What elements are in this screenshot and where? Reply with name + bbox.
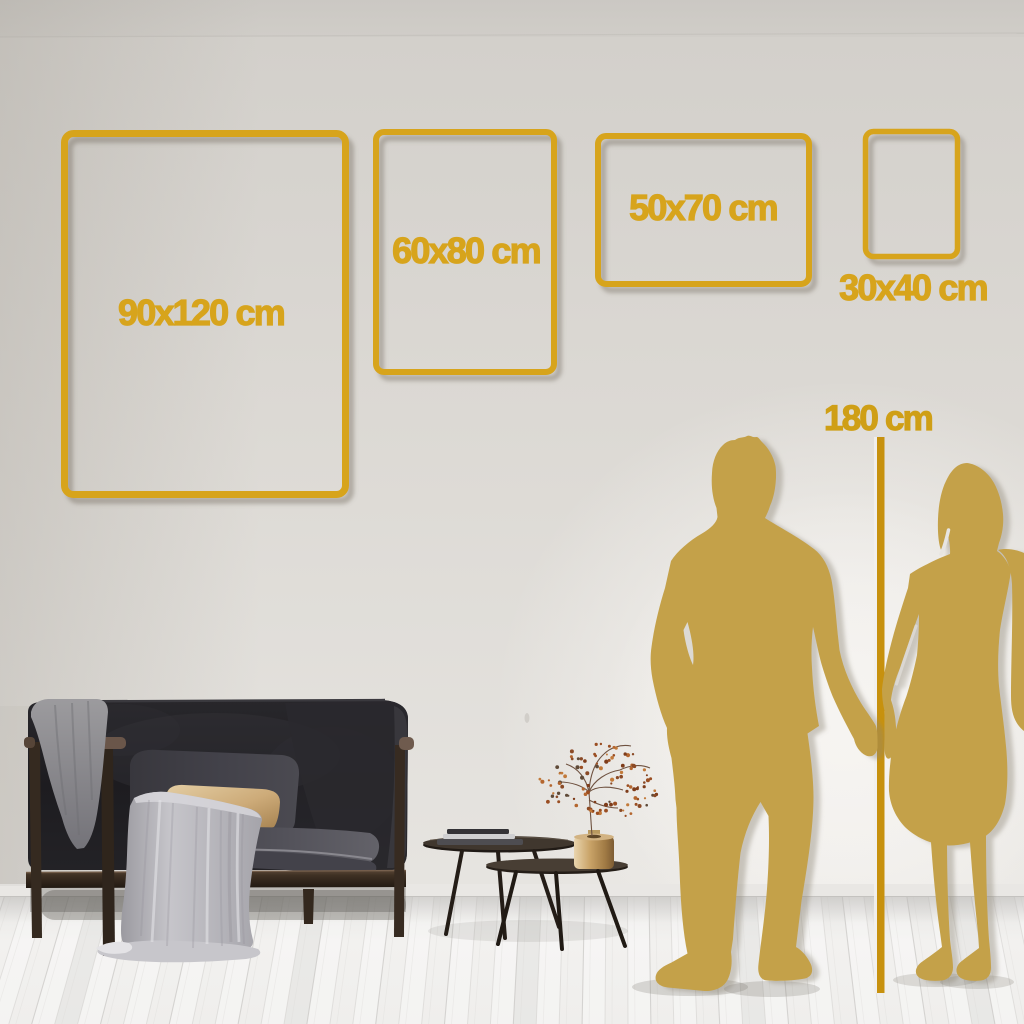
svg-text:180 cm: 180 cm — [824, 399, 932, 438]
svg-text:30x40 cm: 30x40 cm — [839, 267, 987, 308]
svg-text:60x80 cm: 60x80 cm — [392, 230, 540, 271]
svg-text:90x120 cm: 90x120 cm — [118, 292, 284, 333]
svg-text:50x70 cm: 50x70 cm — [629, 187, 777, 228]
